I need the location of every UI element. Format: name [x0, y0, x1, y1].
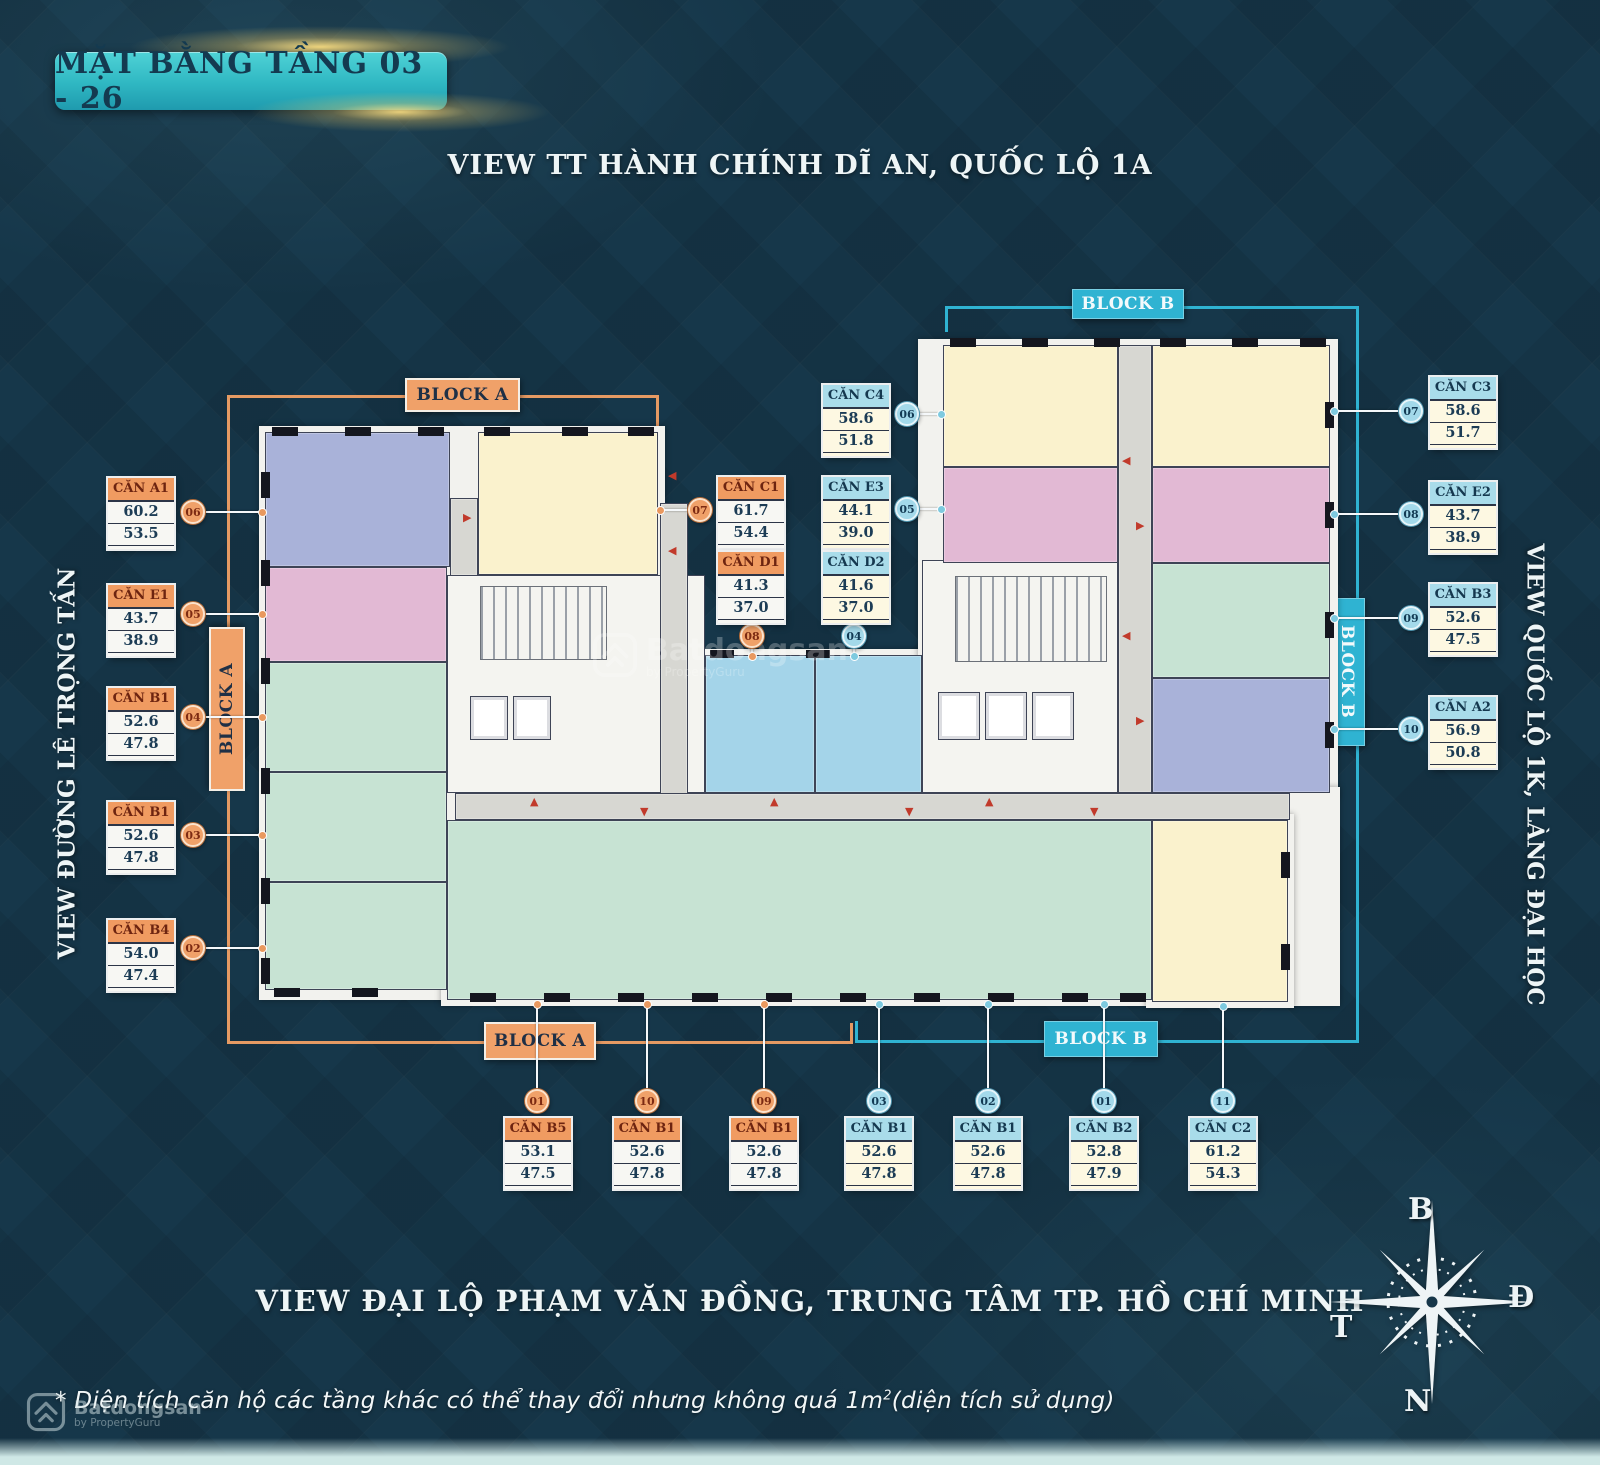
unit-name: CĂN B1 — [108, 688, 174, 712]
unit-b3-room — [1152, 563, 1330, 678]
unit-card-b1-b03: CĂN B152.647.8 — [846, 1118, 912, 1189]
connector-dot-a2-10 — [1330, 725, 1339, 734]
unit-area-gross: 43.7 — [108, 609, 174, 631]
direction-marker: ▲ — [770, 796, 782, 808]
unit-card-c4-06: CĂN C458.651.8 — [823, 385, 889, 456]
connector-line-c3-07 — [1332, 410, 1399, 412]
unit-name: CĂN B1 — [731, 1118, 797, 1142]
connector-dot-c1-07 — [656, 506, 665, 515]
unit-area-gross: 53.1 — [505, 1142, 571, 1164]
unit-e1-room — [265, 567, 447, 662]
footnote: * Diện tích căn hộ các tầng khác có thể … — [55, 1388, 1115, 1414]
connector-dot-b1-b03 — [875, 1000, 884, 1009]
unit-areas: 61.754.4 — [718, 501, 784, 548]
connector-dot-d1-08 — [748, 652, 757, 661]
unit-circle-c1-07: 07 — [688, 498, 712, 522]
unit-areas: 52.647.8 — [108, 712, 174, 759]
connector-dot-c3-07 — [1330, 407, 1339, 416]
block-b-label-top: BLOCK B — [1072, 289, 1184, 319]
unit-areas: 41.637.0 — [823, 576, 889, 623]
unit-name: CĂN C3 — [1430, 377, 1496, 401]
stairs — [480, 586, 607, 660]
connector-line-b5-01 — [536, 1002, 538, 1089]
connector-line-e1-05 — [204, 613, 265, 615]
unit-area-net: 47.8 — [731, 1164, 797, 1186]
block-a-label-bottom: BLOCK A — [484, 1022, 596, 1060]
connector-line-a1-06 — [204, 511, 265, 513]
unit-circle-b5-01: 01 — [525, 1089, 549, 1113]
unit-circle-b3-09: 09 — [1399, 606, 1423, 630]
connector-line-b1-03 — [204, 834, 265, 836]
unit-area-gross: 52.6 — [614, 1142, 680, 1164]
connector-dot-b4-02 — [258, 944, 267, 953]
unit-card-d1-08: CĂN D141.337.0 — [718, 552, 784, 623]
unit-area-net: 47.4 — [108, 966, 174, 988]
unit-areas: 56.950.8 — [1430, 721, 1496, 768]
connector-dot-b2-b01 — [1100, 1000, 1109, 1009]
unit-name: CĂN B5 — [505, 1118, 571, 1142]
unit-b1-04-room — [265, 662, 447, 772]
unit-area-net: 50.8 — [1430, 743, 1496, 765]
connector-dot-b1-09 — [760, 1000, 769, 1009]
connector-dot-d2-04 — [850, 652, 859, 661]
wall-pier — [1232, 338, 1258, 347]
wall-pier — [470, 993, 496, 1002]
unit-areas: 52.847.9 — [1071, 1142, 1137, 1189]
unit-circle-b2-b01: 01 — [1092, 1089, 1116, 1113]
unit-e2-room — [1152, 467, 1330, 563]
unit-area-gross: 61.2 — [1190, 1142, 1256, 1164]
unit-area-gross: 54.0 — [108, 944, 174, 966]
unit-areas: 54.047.4 — [108, 944, 174, 991]
wall-pier — [1094, 338, 1120, 347]
wall-pier — [618, 993, 644, 1002]
elevator-shaft — [985, 692, 1027, 740]
unit-name: CĂN B2 — [1071, 1118, 1137, 1142]
unit-card-c2-11: CĂN C261.254.3 — [1190, 1118, 1256, 1189]
unit-a1-room — [265, 432, 450, 567]
connector-line-b1-b03 — [878, 1002, 880, 1089]
watermark-corner: Batdongsan by PropertyGuru — [26, 1392, 202, 1436]
unit-name: CĂN B1 — [846, 1118, 912, 1142]
direction-marker: ▲ — [985, 796, 997, 808]
compass-north-label: B — [1408, 1192, 1433, 1227]
wall-pier — [1120, 993, 1146, 1002]
view-label-left: VIEW ĐƯỜNG LÊ TRỌNG TẤN — [54, 554, 81, 974]
connector-dot-b1-10 — [643, 1000, 652, 1009]
unit-area-net: 51.8 — [823, 431, 889, 453]
unit-card-b1-09: CĂN B152.647.8 — [731, 1118, 797, 1189]
unit-card-c1-07: CĂN C161.754.4 — [718, 477, 784, 548]
direction-marker: ▼ — [1090, 806, 1102, 818]
wall-pier — [345, 427, 371, 436]
unit-name: CĂN B1 — [108, 802, 174, 826]
unit-name: CĂN B1 — [614, 1118, 680, 1142]
wall-pier — [544, 993, 570, 1002]
unit-area-gross: 52.6 — [108, 712, 174, 734]
view-label-top: VIEW TT HÀNH CHÍNH DĨ AN, QUỐC LỘ 1A — [0, 150, 1600, 181]
unit-c1-room — [478, 432, 658, 575]
wall-pier — [261, 768, 270, 794]
wall-pier — [562, 427, 588, 436]
unit-area-gross: 61.7 — [718, 501, 784, 523]
unit-c2-room — [1152, 820, 1288, 1002]
connector-line-b1-09 — [763, 1002, 765, 1089]
unit-area-net: 38.9 — [1430, 528, 1496, 550]
unit-card-e3-05: CĂN E344.139.0 — [823, 477, 889, 548]
footnote-text-2: (diện tích sử dụng) — [892, 1388, 1115, 1414]
connector-dot-e2-08 — [1330, 510, 1339, 519]
unit-areas: 52.647.8 — [731, 1142, 797, 1189]
unit-circle-e3-05: 05 — [895, 497, 919, 521]
connector-line-e2-08 — [1332, 513, 1399, 515]
wall-pier — [628, 427, 654, 436]
unit-area-net: 47.8 — [846, 1164, 912, 1186]
unit-area-net: 51.7 — [1430, 423, 1496, 445]
wall-pier — [1281, 852, 1290, 878]
unit-areas: 52.647.8 — [614, 1142, 680, 1189]
wall-pier — [261, 658, 270, 684]
unit-card-b4-02: CĂN B454.047.4 — [108, 920, 174, 991]
unit-areas: 52.647.8 — [846, 1142, 912, 1189]
floor-plan-poster: MẶT BẰNG TẦNG 03 - 26 VIEW TT HÀNH CHÍNH… — [0, 0, 1600, 1465]
wall-pier — [261, 472, 270, 498]
unit-area-gross: 60.2 — [108, 502, 174, 524]
unit-circle-d1-08: 08 — [740, 624, 764, 648]
unit-areas: 60.253.5 — [108, 502, 174, 549]
connector-line-c2-11 — [1222, 1004, 1224, 1089]
unit-area-gross: 58.6 — [823, 409, 889, 431]
unit-name: CĂN A1 — [108, 478, 174, 502]
wall-pier — [274, 988, 300, 997]
connector-dot-e1-05 — [258, 610, 267, 619]
unit-area-gross: 43.7 — [1430, 506, 1496, 528]
unit-area-gross: 52.6 — [1430, 608, 1496, 630]
unit-areas: 52.647.5 — [1430, 608, 1496, 655]
unit-circle-b4-02: 02 — [181, 936, 205, 960]
connector-dot-c4-06 — [937, 410, 946, 419]
wall-pier — [272, 427, 298, 436]
unit-circle-b1-10: 10 — [635, 1089, 659, 1113]
unit-area-net: 38.9 — [108, 631, 174, 653]
unit-card-b1-04: CĂN B152.647.8 — [108, 688, 174, 759]
wall-pier — [484, 427, 510, 436]
batdongsan-logo-icon — [26, 1392, 66, 1436]
block-a-label-side: BLOCK A — [209, 627, 245, 791]
wall-pier — [1062, 993, 1088, 1002]
unit-circle-e1-05: 05 — [181, 602, 205, 626]
unit-circle-d2-04: 04 — [842, 624, 866, 648]
unit-area-gross: 52.6 — [108, 826, 174, 848]
direction-marker: ▼ — [905, 806, 917, 818]
unit-area-net: 47.8 — [614, 1164, 680, 1186]
wall-pier — [261, 560, 270, 586]
unit-area-gross: 56.9 — [1430, 721, 1496, 743]
unit-area-gross: 41.6 — [823, 576, 889, 598]
unit-card-a1-06: CĂN A160.253.5 — [108, 478, 174, 549]
footnote-sup: 2 — [883, 1388, 892, 1403]
unit-areas: 43.738.9 — [1430, 506, 1496, 553]
connector-line-b2-b01 — [1103, 1002, 1105, 1089]
unit-circle-c4-06: 06 — [895, 402, 919, 426]
page-title: MẶT BẰNG TẦNG 03 - 26 — [55, 52, 447, 110]
unit-areas: 58.651.8 — [823, 409, 889, 456]
connector-line-a2-10 — [1332, 728, 1399, 730]
direction-marker: ▶ — [463, 512, 475, 524]
corridor-a-top — [450, 498, 478, 576]
wall-pier — [766, 993, 792, 1002]
connector-dot-c2-11 — [1219, 1002, 1228, 1011]
direction-marker: ▼ — [640, 806, 652, 818]
view-label-right: VIEW QUỐC LỘ 1K, LÀNG ĐẠI HỌC — [1522, 544, 1549, 964]
unit-card-c3-07: CĂN C358.651.7 — [1430, 377, 1496, 448]
unit-area-net: 54.4 — [718, 523, 784, 545]
unit-circle-b1-b03: 03 — [867, 1089, 891, 1113]
wall-pier — [840, 993, 866, 1002]
unit-circle-b1-09: 09 — [752, 1089, 776, 1113]
unit-area-gross: 58.6 — [1430, 401, 1496, 423]
unit-c4-room — [943, 345, 1118, 467]
unit-area-net: 47.8 — [108, 734, 174, 756]
unit-card-b3-09: CĂN B352.647.5 — [1430, 584, 1496, 655]
unit-name: CĂN B1 — [955, 1118, 1021, 1142]
wall-pier — [1300, 338, 1326, 347]
watermark-sub: by PropertyGuru — [74, 1418, 202, 1429]
unit-name: CĂN C2 — [1190, 1118, 1256, 1142]
unit-circle-b1-03: 03 — [181, 823, 205, 847]
wall-pier — [1022, 338, 1048, 347]
wall-pier — [692, 993, 718, 1002]
compass-south-label: N — [1404, 1384, 1431, 1419]
connector-line-b4-02 — [204, 947, 265, 949]
unit-areas: 52.647.8 — [955, 1142, 1021, 1189]
block-a-label-top: BLOCK A — [405, 378, 520, 412]
unit-area-gross: 52.6 — [955, 1142, 1021, 1164]
unit-circle-e2-08: 08 — [1399, 502, 1423, 526]
unit-name: CĂN D2 — [823, 552, 889, 576]
unit-card-e2-08: CĂN E243.738.9 — [1430, 482, 1496, 553]
watermark-sub: by PropertyGuru — [646, 666, 848, 679]
unit-area-gross: 52.8 — [1071, 1142, 1137, 1164]
unit-area-net: 47.8 — [108, 848, 174, 870]
unit-name: CĂN E1 — [108, 585, 174, 609]
unit-name: CĂN B4 — [108, 920, 174, 944]
unit-area-net: 47.5 — [1430, 630, 1496, 652]
unit-b1-03-room — [265, 772, 447, 882]
unit-areas: 44.139.0 — [823, 501, 889, 548]
unit-card-b1-b02: CĂN B152.647.8 — [955, 1118, 1021, 1189]
unit-name: CĂN C4 — [823, 385, 889, 409]
unit-c3-room — [1152, 345, 1330, 467]
connector-dot-b1-03 — [258, 831, 267, 840]
unit-area-gross: 41.3 — [718, 576, 784, 598]
connector-line-b1-04 — [204, 716, 265, 718]
unit-circle-c2-11: 11 — [1211, 1089, 1235, 1113]
elevator-shaft — [513, 696, 551, 740]
unit-name: CĂN A2 — [1430, 697, 1496, 721]
unit-area-net: 37.0 — [823, 598, 889, 620]
unit-area-net: 47.5 — [505, 1164, 571, 1186]
unit-card-b1-10: CĂN B152.647.8 — [614, 1118, 680, 1189]
unit-circle-a1-06: 06 — [181, 500, 205, 524]
batdongsan-logo-icon — [592, 632, 638, 682]
unit-areas: 43.738.9 — [108, 609, 174, 656]
unit-card-b1-03: CĂN B152.647.8 — [108, 802, 174, 873]
unit-circle-c3-07: 07 — [1399, 399, 1423, 423]
connector-dot-b5-01 — [533, 1000, 542, 1009]
stairs — [955, 576, 1107, 662]
unit-b4-02-room — [265, 882, 447, 990]
wall-pier — [261, 878, 270, 904]
wall-pier — [261, 958, 270, 984]
wall-pier — [1160, 338, 1186, 347]
elevator-shaft — [1032, 692, 1074, 740]
unit-circle-b1-04: 04 — [181, 705, 205, 729]
connector-line-b1-10 — [646, 1002, 648, 1089]
unit-areas: 58.651.7 — [1430, 401, 1496, 448]
watermark-brand: Batdongsan — [74, 1399, 202, 1419]
unit-area-net: 47.9 — [1071, 1164, 1137, 1186]
direction-marker: ◀ — [1122, 455, 1134, 467]
direction-marker: ◀ — [668, 545, 680, 557]
unit-area-net: 47.8 — [955, 1164, 1021, 1186]
wall-pier — [352, 988, 378, 997]
watermark-center: Batdongsan by PropertyGuru — [592, 632, 848, 682]
unit-area-gross: 44.1 — [823, 501, 889, 523]
connector-dot-b1-04 — [258, 713, 267, 722]
unit-circle-a2-10: 10 — [1399, 717, 1423, 741]
connector-dot-a1-06 — [258, 508, 267, 517]
unit-a2-room — [1152, 678, 1330, 793]
unit-area-net: 37.0 — [718, 598, 784, 620]
wall-pier — [418, 427, 444, 436]
block-b-label-bottom: BLOCK B — [1044, 1021, 1158, 1057]
unit-areas: 53.147.5 — [505, 1142, 571, 1189]
bottom-gradient-strip — [0, 1438, 1600, 1465]
direction-marker: ▶ — [1136, 715, 1148, 727]
wall-pier — [914, 993, 940, 1002]
connector-dot-b3-09 — [1330, 614, 1339, 623]
corridor-main — [455, 793, 1290, 820]
elevator-shaft — [470, 696, 508, 740]
unit-area-gross: 52.6 — [731, 1142, 797, 1164]
compass-west-label: T — [1330, 1310, 1352, 1345]
unit-name: CĂN E2 — [1430, 482, 1496, 506]
wing-studios — [447, 820, 1152, 1000]
connector-dot-b1-b02 — [984, 1000, 993, 1009]
unit-name: CĂN E3 — [823, 477, 889, 501]
unit-areas: 61.254.3 — [1190, 1142, 1256, 1189]
unit-area-net: 54.3 — [1190, 1164, 1256, 1186]
direction-marker: ▲ — [530, 796, 542, 808]
unit-areas: 41.337.0 — [718, 576, 784, 623]
unit-card-e1-05: CĂN E143.738.9 — [108, 585, 174, 656]
unit-area-gross: 52.6 — [846, 1142, 912, 1164]
compass-east-label: Đ — [1508, 1280, 1534, 1315]
unit-area-net: 53.5 — [108, 524, 174, 546]
direction-marker: ◀ — [668, 470, 680, 482]
wall-pier — [1281, 944, 1290, 970]
unit-name: CĂN B3 — [1430, 584, 1496, 608]
unit-area-net: 39.0 — [823, 523, 889, 545]
direction-marker: ▶ — [1136, 520, 1148, 532]
wall-pier — [950, 338, 976, 347]
unit-e3-room — [943, 467, 1118, 563]
unit-card-a2-10: CĂN A256.950.8 — [1430, 697, 1496, 768]
connector-line-b1-b02 — [987, 1002, 989, 1089]
unit-name: CĂN D1 — [718, 552, 784, 576]
unit-card-b5-01: CĂN B553.147.5 — [505, 1118, 571, 1189]
unit-circle-b1-b02: 02 — [976, 1089, 1000, 1113]
connector-line-b3-09 — [1332, 617, 1399, 619]
unit-card-b2-b01: CĂN B252.847.9 — [1071, 1118, 1137, 1189]
connector-dot-e3-05 — [937, 505, 946, 514]
unit-areas: 52.647.8 — [108, 826, 174, 873]
direction-marker: ◀ — [1122, 630, 1134, 642]
unit-card-d2-04: CĂN D241.637.0 — [823, 552, 889, 623]
unit-name: CĂN C1 — [718, 477, 784, 501]
elevator-shaft — [938, 692, 980, 740]
